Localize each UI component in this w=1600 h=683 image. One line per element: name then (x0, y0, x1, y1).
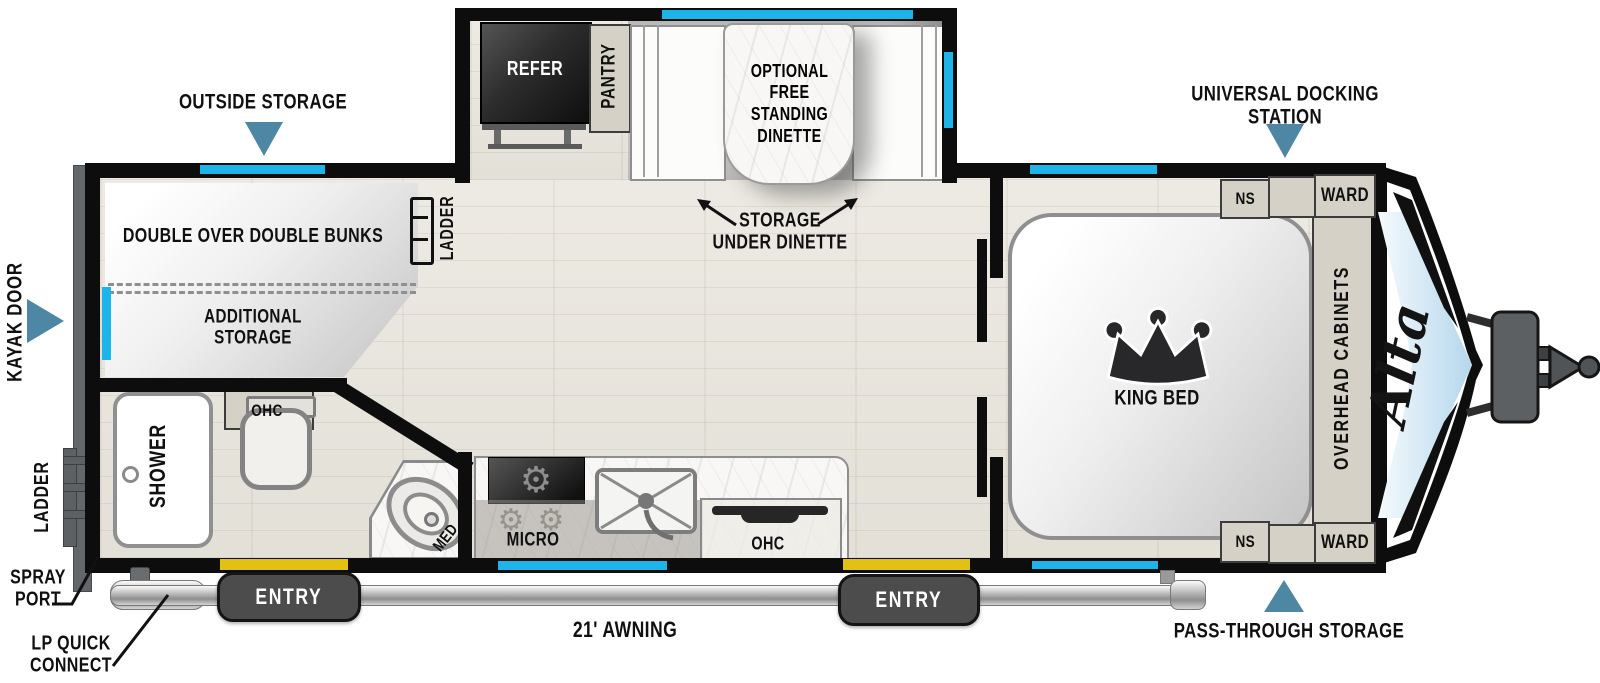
pass-through-storage-label: PASS-THROUGH STORAGE (1174, 621, 1404, 644)
nightstand: NS (1220, 521, 1270, 563)
crown-icon (1102, 306, 1214, 390)
floorplan: DOUBLE OVER DOUBLE BUNKS ADDITIONAL STOR… (0, 0, 1600, 683)
bunk-divider-dash (108, 291, 416, 294)
micro-label: MICRO (507, 531, 560, 552)
tv-stand-leg (494, 130, 501, 144)
window (102, 287, 111, 360)
entry-door-rear: ENTRY (217, 572, 361, 622)
ns-bottom-label: NS (1235, 532, 1255, 552)
lp-quick-connect-label: LP QUICK CONNECT (30, 633, 112, 676)
awning-label: 21' AWNING (573, 618, 677, 642)
entry-door-strip (843, 559, 970, 570)
window (498, 561, 667, 570)
outside-storage-label: OUTSIDE STORAGE (179, 92, 347, 115)
shower-label: SHOWER (147, 424, 169, 508)
entry-door-strip (220, 559, 348, 570)
universal-docking-station-marker (1266, 124, 1304, 158)
shower-handle (122, 466, 139, 483)
bench-armrest (657, 25, 659, 177)
burner-icon: ⚙ (520, 462, 552, 498)
bench-armrest (935, 25, 937, 177)
bunks-label: DOUBLE OVER DOUBLE BUNKS (123, 226, 383, 248)
window (1030, 165, 1157, 174)
window (200, 165, 325, 174)
bedroom-wall-bottom (990, 457, 1003, 560)
spray-port-label: SPRAY PORT (10, 567, 66, 610)
bench-armrest (643, 25, 645, 177)
bedroom-pocket-door (977, 397, 987, 497)
slide-wall-left (455, 8, 470, 183)
universal-docking-station-label: UNIVERSAL DOCKING STATION (1159, 83, 1411, 128)
window (662, 10, 913, 19)
pass-through-storage-marker (1264, 580, 1304, 612)
tv-stand-leg (564, 130, 571, 144)
ns-top-label: NS (1235, 189, 1255, 209)
hitch-block (1538, 347, 1549, 360)
rear-ladder-label: LADDER (32, 461, 52, 532)
outside-storage-marker (245, 122, 283, 156)
bedroom-pocket-door (977, 239, 987, 342)
propane-cover (1492, 312, 1538, 422)
kitchen-sink (593, 466, 699, 546)
bench-armrest (921, 25, 923, 177)
window (1032, 561, 1158, 569)
kitchen-ohc-label: OHC (751, 534, 784, 553)
cabinet (1268, 524, 1316, 564)
tv-stand-base (488, 144, 582, 149)
hitch-block (1538, 374, 1549, 387)
bath-ohc-label: OHC (251, 402, 282, 420)
bunk-ladder-icon (410, 197, 434, 265)
window (944, 52, 953, 128)
nightstand: NS (1220, 179, 1270, 219)
refer-label: REFER (507, 59, 563, 81)
overhead-cabinets-label: OVERHEAD CABINETS (1332, 266, 1352, 470)
entry-door-front: ENTRY (838, 574, 980, 626)
wall-rear (85, 163, 100, 573)
front-cap: Alta (1360, 150, 1600, 590)
range-hood-icon (741, 514, 799, 523)
entry-rear-label: ENTRY (256, 584, 323, 610)
kitchen-wall (458, 452, 472, 562)
hitch-jack (1579, 357, 1599, 377)
bunk-ladder-label: LADDER (438, 196, 456, 261)
king-bed-label: KING BED (1114, 388, 1199, 411)
dinette-bench-right (852, 25, 948, 181)
pantry-label: PANTRY (600, 43, 619, 109)
storage-under-dinette-label: STORAGE UNDER DINETTE (713, 210, 848, 253)
cabinet (1268, 176, 1316, 218)
kayak-door-marker (27, 299, 64, 343)
vanity-faucet (424, 512, 439, 527)
bunk-divider-dash (108, 283, 416, 286)
bedroom-wall-top (990, 175, 1003, 278)
dinette-table: OPTIONAL FREE STANDING DINETTE (723, 23, 855, 185)
toilet-bowl (240, 408, 312, 490)
bath-wall-top (100, 378, 347, 392)
awning-rail-end (1170, 580, 1206, 610)
additional-storage-label: ADDITIONAL STORAGE (204, 307, 302, 348)
kayak-door-label: KAYAK DOOR (5, 262, 26, 382)
entry-front-label: ENTRY (876, 587, 943, 613)
dinette-label: OPTIONAL FREE STANDING DINETTE (750, 61, 828, 147)
